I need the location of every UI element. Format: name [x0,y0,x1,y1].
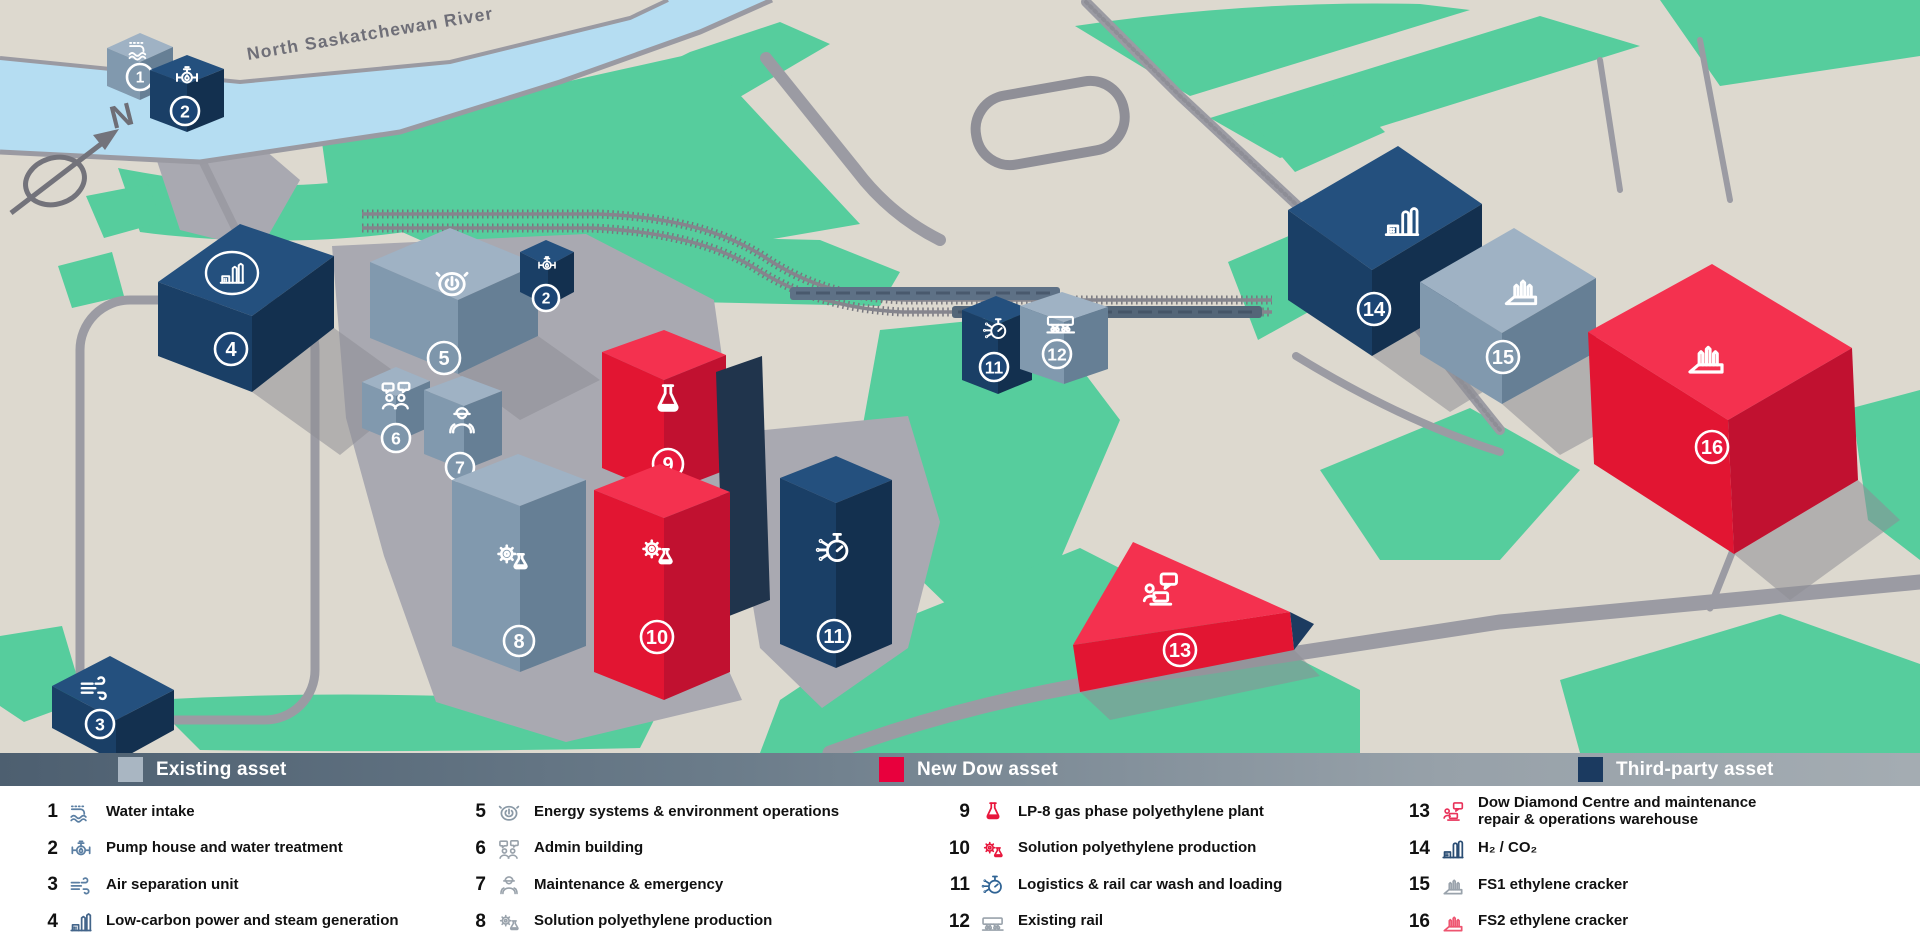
legend-column-4: 13 Dow Diamond Centre and maintenance re… [1402,794,1912,940]
legend-column-1: 1 Water intake 2 Pump house and water tr… [30,794,440,940]
flask-icon [980,799,1006,825]
svg-text:13: 13 [1169,640,1191,662]
water-intake-icon [68,799,94,825]
list-item: 3 Air separation unit [30,867,440,904]
item-label: Existing rail [1018,913,1103,930]
h2-co2-plant-icon [1440,836,1466,862]
power-plant-icon [68,909,94,935]
site-map: North Saskatchewan River N 1 2 [0,0,1920,753]
pump-icon [68,836,94,862]
svg-text:15: 15 [1492,347,1514,369]
item-label: FS2 ethylene cracker [1478,913,1628,930]
building-8-solution-pe: 8 [452,454,586,672]
item-label: Low-carbon power and steam generation [106,913,399,930]
marker-5: 5 [428,342,460,374]
item-number: 16 [1402,911,1430,933]
gear-flask-icon [496,909,522,935]
marker-13: 13 [1164,634,1196,666]
building-2-pump-house: 2 [150,55,224,132]
marker-4: 4 [215,333,247,365]
legend-third-party-asset: Third-party asset [1578,753,1774,786]
legend-column-3: 9 LP-8 gas phase polyethylene plant 10 S… [942,794,1382,940]
marker-2: 2 [171,97,199,125]
svg-text:2: 2 [542,291,551,308]
marker-14: 14 [1358,293,1390,325]
item-label: H₂ / CO₂ [1478,840,1537,857]
item-number: 9 [942,801,970,823]
item-label: FS1 ethylene cracker [1478,877,1628,894]
item-label: LP-8 gas phase polyethylene plant [1018,804,1264,821]
marker-11b: 11 [980,353,1008,381]
item-label: Solution polyethylene production [534,913,772,930]
service-centre-icon [1440,799,1466,825]
marker-11: 11 [818,620,850,652]
marker-16: 16 [1696,431,1728,463]
list-item: 7 Maintenance & emergency [458,867,928,904]
item-label: Logistics & rail car wash and loading [1018,877,1282,894]
item-label: Water intake [106,804,195,821]
stopwatch-wash-icon [980,872,1006,898]
item-label: Maintenance & emergency [534,877,723,894]
svg-text:2: 2 [180,101,190,121]
asset-legend-bar: Existing asset New Dow asset Third-party… [0,753,1920,786]
svg-text:5: 5 [438,348,449,370]
list-item: 15 FS1 ethylene cracker [1402,867,1912,904]
new-dow-asset-swatch [879,757,904,782]
marker-15: 15 [1487,341,1519,373]
list-item: 13 Dow Diamond Centre and maintenance re… [1402,794,1912,831]
new-dow-asset-label: New Dow asset [917,759,1058,781]
building-11-logistics: 11 [780,456,892,668]
list-item: 5 Energy systems & environment operation… [458,794,928,831]
marker-8: 8 [504,626,534,656]
legend-column-2: 5 Energy systems & environment operation… [458,794,928,940]
svg-text:11: 11 [823,626,844,648]
item-label: Admin building [534,840,643,857]
svg-text:8: 8 [513,631,524,653]
list-item: 14 H₂ / CO₂ [1402,831,1912,868]
item-number: 4 [30,911,58,933]
svg-text:16: 16 [1701,437,1723,459]
marker-12: 12 [1043,340,1071,368]
list-item: 10 Solution polyethylene production [942,831,1382,868]
list-item: 11 Logistics & rail car wash and loading [942,867,1382,904]
marker-3: 3 [86,710,114,738]
cracker-icon [1440,909,1466,935]
building-10-solution-pe: 10 [594,464,730,700]
marker-1: 1 [127,64,153,90]
cracker-icon [1440,872,1466,898]
svg-text:14: 14 [1363,299,1386,321]
svg-text:4: 4 [225,339,237,361]
third-party-asset-swatch [1578,757,1603,782]
item-number: 2 [30,838,58,860]
svg-text:10: 10 [646,627,668,649]
marker-10: 10 [641,621,673,653]
svg-text:11: 11 [985,357,1004,377]
item-number: 3 [30,874,58,896]
legend-new-dow-asset: New Dow asset [879,753,1058,786]
legend-key-list: 1 Water intake 2 Pump house and water tr… [0,786,1920,946]
item-number: 13 [1402,801,1430,823]
list-item: 9 LP-8 gas phase polyethylene plant [942,794,1382,831]
item-label: Energy systems & environment operations [534,804,839,821]
existing-asset-label: Existing asset [156,759,287,781]
existing-asset-swatch [118,757,143,782]
marker-6: 6 [382,424,410,452]
item-number: 12 [942,911,970,933]
admin-people-icon [496,836,522,862]
item-number: 6 [458,838,486,860]
list-item: 1 Water intake [30,794,440,831]
item-number: 11 [942,874,970,896]
item-number: 10 [942,838,970,860]
item-number: 5 [458,801,486,823]
list-item: 4 Low-carbon power and steam generation [30,904,440,941]
svg-text:12: 12 [1047,344,1067,364]
air-separation-icon [68,872,94,898]
marker-2b: 2 [533,285,559,311]
legend-existing-asset: Existing asset [118,753,287,786]
item-label: Solution polyethylene production [1018,840,1256,857]
item-number: 14 [1402,838,1430,860]
item-number: 8 [458,911,486,933]
svg-text:7: 7 [455,457,465,477]
svg-text:1: 1 [136,70,145,87]
item-number: 1 [30,801,58,823]
item-number: 7 [458,874,486,896]
list-item: 6 Admin building [458,831,928,868]
list-item: 2 Pump house and water treatment [30,831,440,868]
item-label: Dow Diamond Centre and maintenance repai… [1478,795,1788,829]
item-number: 15 [1402,874,1430,896]
third-party-asset-label: Third-party asset [1616,759,1774,781]
maintenance-worker-icon [496,872,522,898]
item-label: Pump house and water treatment [106,840,343,857]
list-item: 8 Solution polyethylene production [458,904,928,941]
rail-car-icon [980,909,1006,935]
svg-text:6: 6 [391,428,401,448]
building-12-existing-rail: 12 [1020,292,1108,384]
svg-text:3: 3 [95,714,105,734]
gear-flask-icon [980,836,1006,862]
energy-gauge-icon [496,799,522,825]
item-label: Air separation unit [106,877,239,894]
list-item: 12 Existing rail [942,904,1382,941]
list-item: 16 FS2 ethylene cracker [1402,904,1912,941]
site-map-infographic: North Saskatchewan River N 1 2 [0,0,1920,946]
